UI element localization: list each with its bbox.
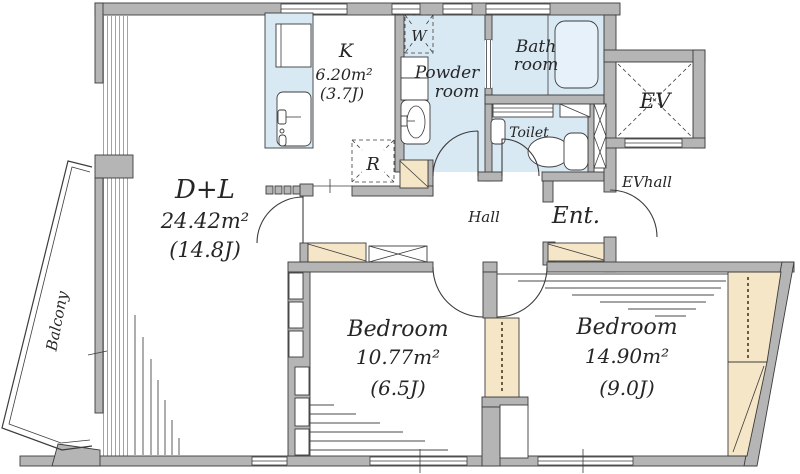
- bedroom2-niche: [500, 405, 528, 458]
- bedroom1-area-label: 10.77m²: [356, 345, 440, 369]
- balcony-outer-edge: [2, 161, 92, 450]
- bedroom1-label: Bedroom: [346, 317, 448, 342]
- bedroom2-ceiling-hatch: [492, 274, 728, 316]
- living-hall-stub: [300, 243, 308, 262]
- shelf-cell: [289, 331, 303, 357]
- hall-south-wall-a: [288, 262, 433, 272]
- left-wall-pier: [95, 155, 133, 178]
- hall-north-wall-b: [542, 172, 604, 181]
- faucet-base: [278, 110, 286, 124]
- refrigerator-label: R: [365, 154, 380, 175]
- pipe-shaft-box: [594, 104, 606, 168]
- living-bedroom1-wall: [288, 272, 310, 456]
- living-door-swing: [257, 197, 303, 243]
- living-tatami-label: (14.8J): [169, 238, 241, 262]
- toilet-tank: [564, 133, 588, 170]
- bedroom-divider-lower: [482, 407, 500, 466]
- partition-block: [300, 184, 313, 196]
- bath-bottom-wall: [485, 95, 604, 104]
- kitchen-label: K: [338, 40, 355, 62]
- bedroom1-tatami-label: (6.5J): [370, 376, 425, 400]
- bathtub: [555, 21, 598, 88]
- toilet-hand-basin: [491, 119, 505, 144]
- powder-room-label2: room: [435, 82, 480, 102]
- shelf-cell: [295, 398, 309, 426]
- bedroom-divider-upper: [483, 272, 497, 318]
- shelf-cell: [295, 429, 309, 455]
- bath-room-label: Bath: [515, 37, 556, 57]
- ev-hall-label: EVhall: [621, 173, 672, 191]
- kitchen-area-label: 6.20m²: [315, 65, 372, 84]
- toilet-shelf: [493, 104, 553, 117]
- basin-faucet: [401, 116, 407, 126]
- shelf-cell: [289, 273, 303, 299]
- closets: [308, 160, 781, 456]
- shelf-cell: [289, 302, 303, 328]
- floor-plan-drawing: D+L 24.42m² (14.8J) K 6.20m² (3.7J) Powd…: [0, 0, 800, 474]
- bath-door-gap: [485, 40, 492, 88]
- living-label: D+L: [174, 175, 235, 205]
- bedroom2-label: Bedroom: [575, 315, 677, 340]
- sink-drain: [280, 129, 284, 133]
- living-corner-hatch: [135, 315, 179, 455]
- powder-bath-wall-lower: [485, 88, 492, 95]
- washer-label: W: [411, 27, 428, 45]
- bath-room-label2: room: [514, 55, 559, 75]
- partition-post: [293, 186, 300, 194]
- bedroom2-area-label: 14.90m²: [585, 344, 669, 368]
- powder-bath-wall-upper: [485, 15, 492, 40]
- floor-plan-page: D+L 24.42m² (14.8J) K 6.20m² (3.7J) Powd…: [0, 0, 800, 474]
- left-wall-upper: [95, 3, 103, 83]
- partition-post: [275, 186, 282, 194]
- partition-post: [266, 186, 273, 194]
- bedroom2-north-wall: [547, 262, 794, 272]
- hall-north-wall-a: [478, 172, 502, 181]
- bath-door: [485, 40, 492, 88]
- kitchen-tatami-label: (3.7J): [320, 84, 364, 103]
- pipe-shaft: [594, 104, 606, 168]
- balcony-inner-edge: [9, 167, 90, 443]
- bedroom2-tatami-label: (9.0J): [599, 376, 654, 400]
- elevator-right-wall: [693, 50, 705, 148]
- entrance-label: Ent.: [551, 203, 600, 229]
- living-area-label: 24.42m²: [160, 209, 249, 233]
- shelf-cell: [295, 367, 309, 395]
- left-wall-lower: [95, 178, 103, 413]
- bedroom1-door-swing: [433, 267, 483, 317]
- window-mullion-lines: [104, 16, 128, 456]
- hall-label: Hall: [467, 208, 500, 226]
- powder-room-label: Powder: [414, 63, 480, 83]
- sink-rack: [279, 135, 286, 146]
- partition-post: [284, 186, 291, 194]
- elevator-top-wall: [604, 50, 705, 62]
- elevator-label: EV: [639, 89, 672, 113]
- bedroom1-corner-hatch: [310, 405, 448, 450]
- toilet-label: Toilet: [509, 125, 549, 141]
- balcony-junction-wall: [52, 444, 100, 466]
- entrance-west-stub: [543, 181, 553, 202]
- entrance-door-swing: [610, 190, 657, 237]
- bedroom2-door-swing: [497, 267, 547, 317]
- balcony-label: Balcony: [42, 289, 71, 353]
- hall-south-wall-b: [483, 262, 497, 272]
